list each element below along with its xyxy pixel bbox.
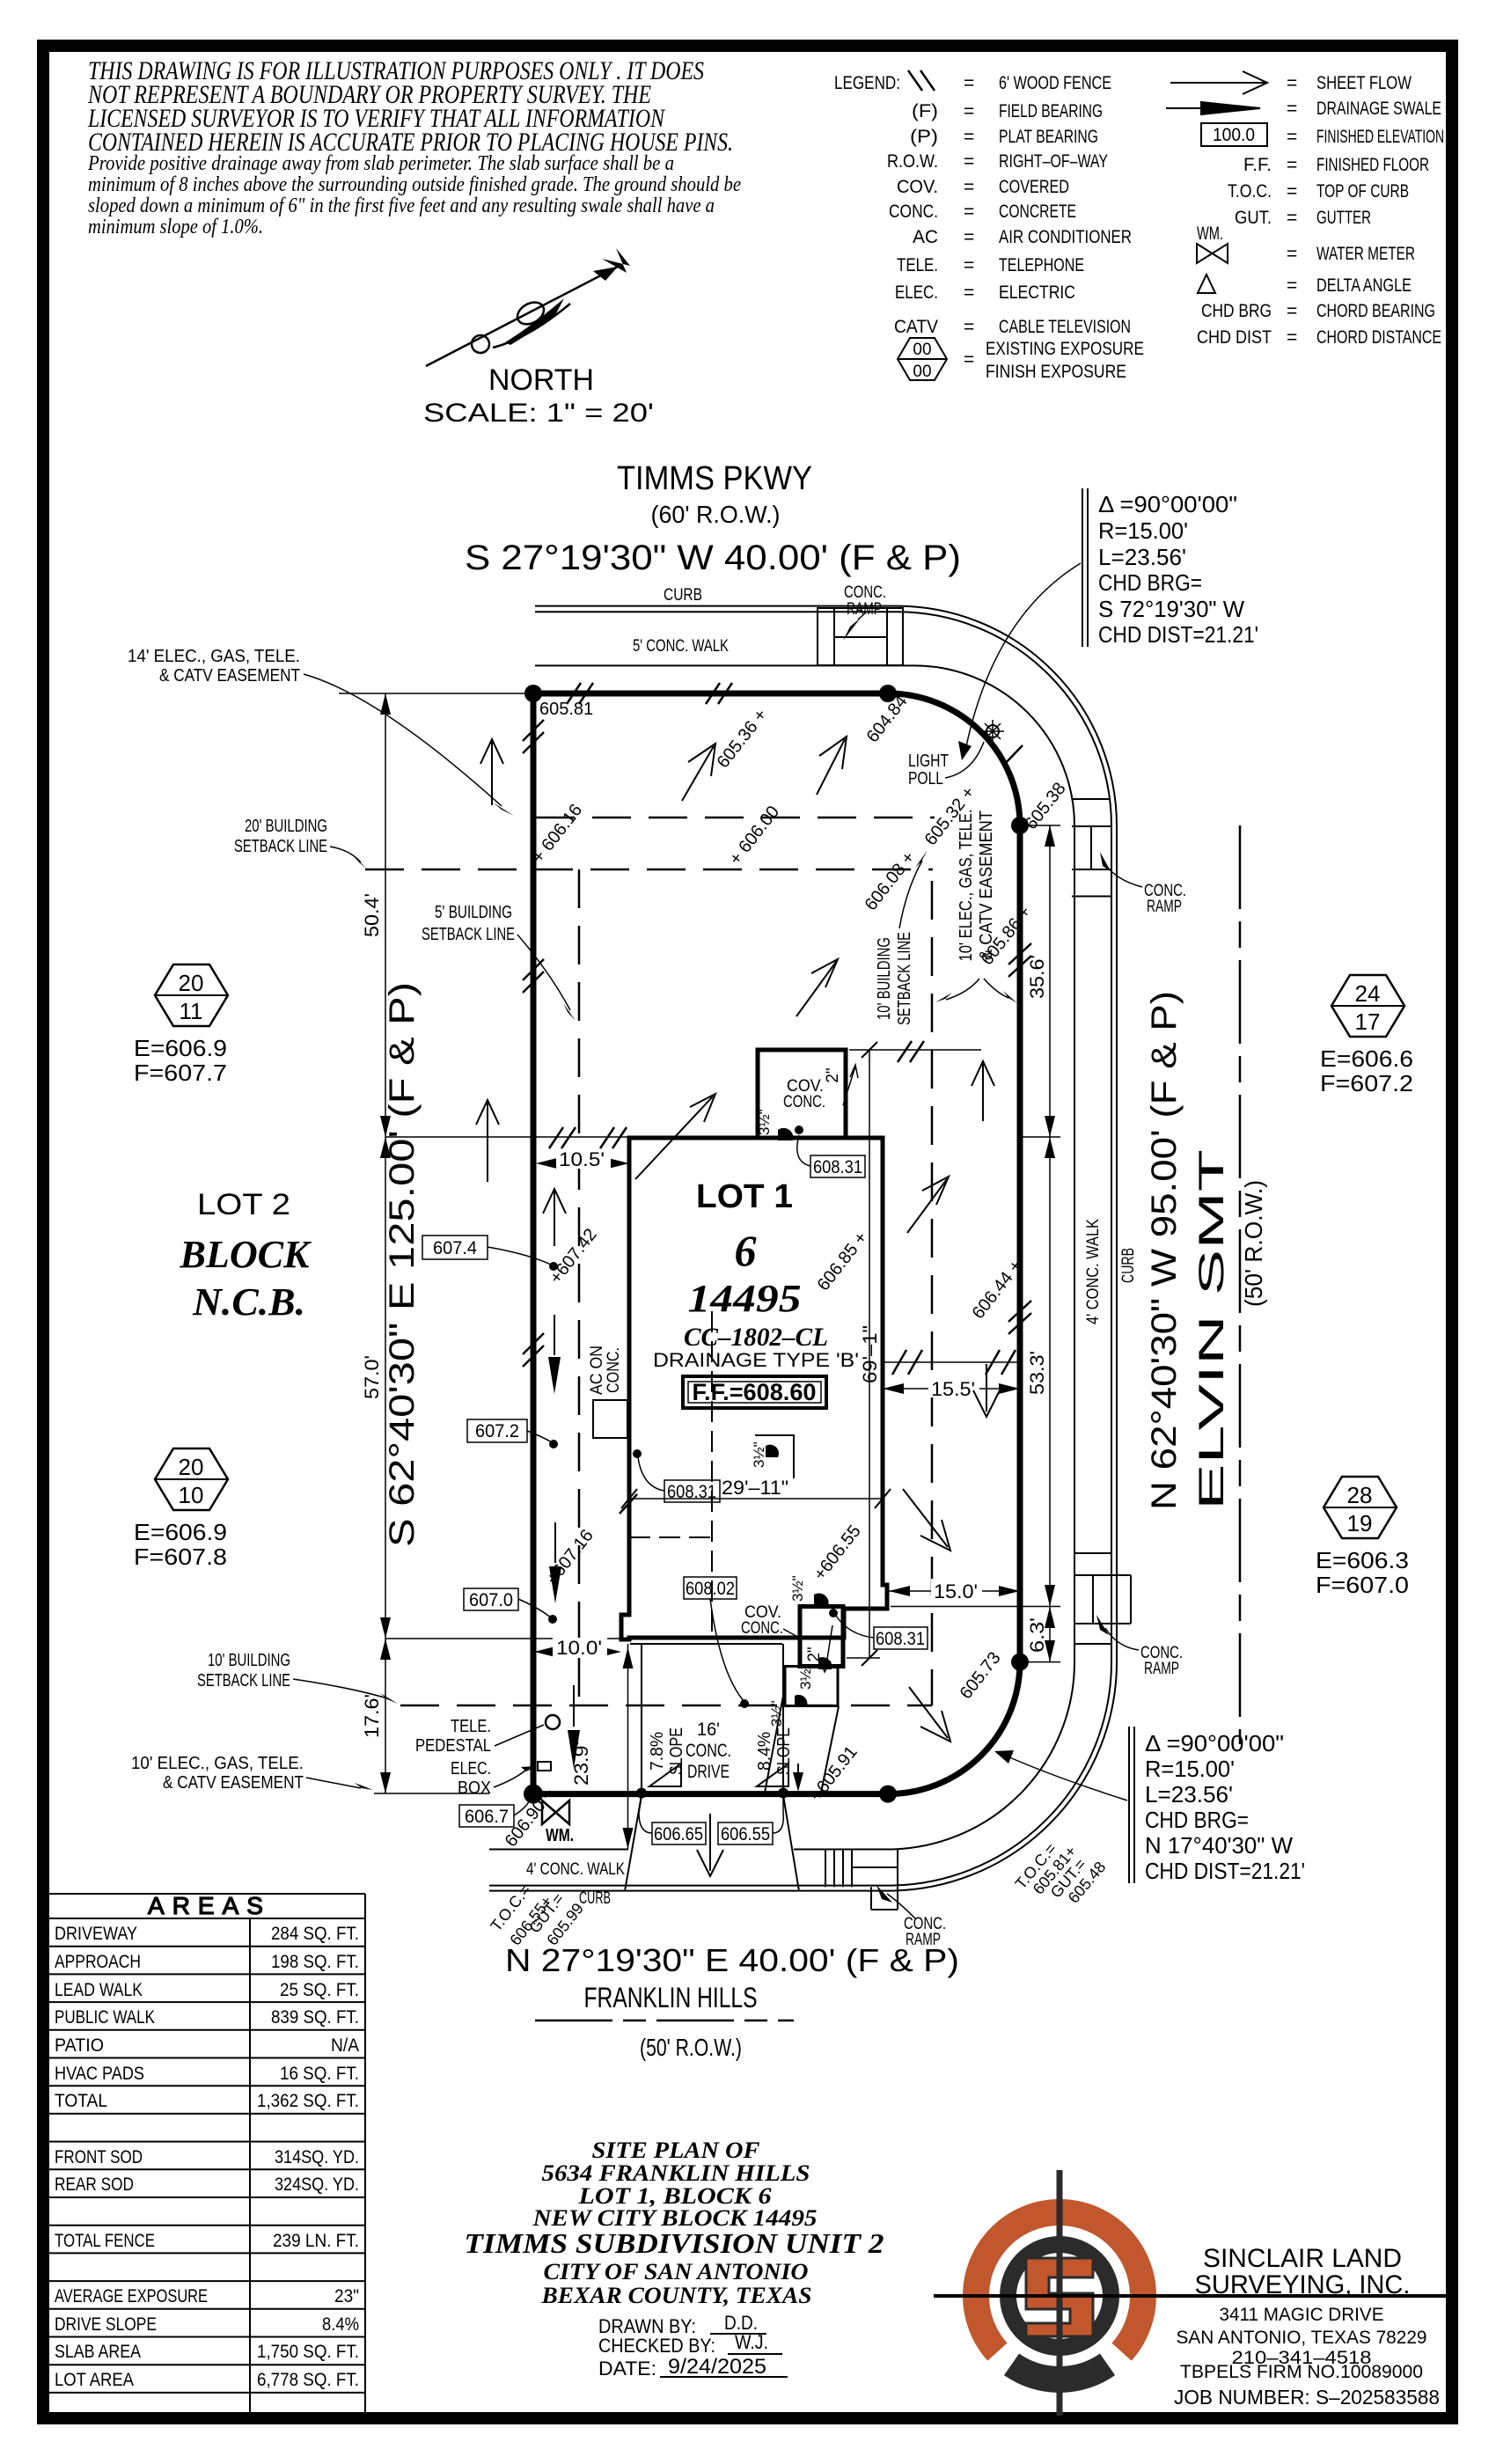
svg-text:E=606.3: E=606.3 (1316, 1547, 1409, 1573)
svg-text:CHECKED BY:: CHECKED BY: (598, 2335, 715, 2357)
svg-text:606.7: 606.7 (465, 1807, 509, 1827)
svg-text:N.C.B.: N.C.B. (192, 1280, 305, 1324)
svg-text:SLOPE: SLOPE (774, 1727, 794, 1775)
svg-text:239 LN. FT.: 239 LN. FT. (273, 2231, 359, 2251)
svg-text:=: = (964, 151, 974, 172)
svg-text:6.3': 6.3' (1026, 1617, 1048, 1653)
svg-text:9/24/2025: 9/24/2025 (668, 2355, 766, 2379)
svg-text:=: = (964, 317, 974, 337)
svg-text:TELEPHONE: TELEPHONE (999, 255, 1084, 275)
svg-text:CHD BRG: CHD BRG (1201, 301, 1272, 321)
svg-text:CHD DIST=21.21': CHD DIST=21.21' (1098, 621, 1258, 648)
svg-text:(50' R.O.W.): (50' R.O.W.) (640, 2034, 742, 2061)
svg-text:GUTTER: GUTTER (1316, 208, 1371, 228)
svg-text:TIMMS PKWY: TIMMS PKWY (617, 460, 812, 497)
svg-text:CURB: CURB (1119, 1248, 1138, 1283)
svg-text:RIGHT–OF–WAY: RIGHT–OF–WAY (999, 151, 1108, 172)
svg-text:S 62°40'30" E 125.00' (F & P): S 62°40'30" E 125.00' (F & P) (383, 982, 422, 1547)
svg-text:=: = (1287, 127, 1297, 147)
svg-text:AC: AC (913, 227, 938, 247)
svg-text:SETBACK LINE: SETBACK LINE (422, 925, 515, 944)
svg-text:HVAC PADS: HVAC PADS (55, 2064, 144, 2084)
svg-text:ELEC.: ELEC. (895, 282, 938, 303)
svg-text:(P): (P) (910, 127, 938, 147)
svg-text:FRONT SOD: FRONT SOD (55, 2147, 143, 2167)
svg-text:COV.: COV. (897, 177, 938, 197)
svg-text:=: = (1287, 208, 1297, 228)
svg-text:L=23.56': L=23.56' (1098, 544, 1186, 570)
svg-text:DATE:: DATE: (598, 2358, 656, 2380)
svg-text:SINCLAIR LAND: SINCLAIR LAND (1203, 2244, 1402, 2273)
svg-text:GUT.: GUT. (1235, 208, 1272, 228)
svg-text:CABLE TELEVISION: CABLE TELEVISION (999, 317, 1131, 337)
svg-text:=: = (1287, 181, 1297, 202)
svg-text:LOT 2: LOT 2 (197, 1188, 290, 1221)
svg-text:100.0: 100.0 (1213, 125, 1255, 145)
svg-text:14' ELEC., GAS, TELE.: 14' ELEC., GAS, TELE. (128, 647, 300, 666)
svg-text:608.31: 608.31 (813, 1157, 862, 1177)
svg-text:=: = (964, 73, 974, 93)
svg-text:PATIO: PATIO (55, 2035, 104, 2056)
svg-text:314SQ. YD.: 314SQ. YD. (275, 2147, 359, 2167)
svg-text:CITY OF SAN ANTONIO: CITY OF SAN ANTONIO (544, 2259, 809, 2284)
svg-text:FINISHED FLOOR: FINISHED FLOOR (1316, 155, 1429, 175)
svg-text:F=607.2: F=607.2 (1320, 1070, 1413, 1096)
svg-text:(60' R.O.W.): (60' R.O.W.) (651, 501, 781, 528)
svg-text:N 17°40'30" W: N 17°40'30" W (1145, 1832, 1293, 1859)
svg-text:JOB NUMBER: S–202583588: JOB NUMBER: S–202583588 (1174, 2386, 1440, 2409)
svg-text:TOP OF CURB: TOP OF CURB (1316, 181, 1409, 202)
svg-text:SETBACK LINE: SETBACK LINE (895, 932, 914, 1025)
svg-text:AREAS: AREAS (148, 1892, 271, 1919)
svg-text:=: = (1287, 301, 1297, 321)
svg-text:=: = (964, 202, 974, 222)
svg-text:606.55: 606.55 (721, 1824, 770, 1844)
svg-text:=: = (964, 255, 974, 275)
svg-text:T.O.C.: T.O.C. (1228, 181, 1272, 202)
svg-text:FINISH EXPOSURE: FINISH EXPOSURE (986, 362, 1126, 382)
svg-text:W.J.: W.J. (735, 2331, 768, 2353)
svg-text:PEDESTAL: PEDESTAL (415, 1736, 491, 1756)
svg-text:3½": 3½" (797, 1663, 814, 1690)
svg-text:N 27°19'30" E 40.00' (F & P): N 27°19'30" E 40.00' (F & P) (505, 1942, 959, 1978)
svg-text:F.F.=608.60: F.F.=608.60 (693, 1379, 817, 1405)
svg-text:10.0': 10.0' (556, 1637, 602, 1659)
svg-text:EXISTING EXPOSURE: EXISTING EXPOSURE (986, 339, 1144, 359)
svg-text:Provide positive drainage away: Provide positive drainage away from slab… (87, 152, 674, 175)
svg-text:N/A: N/A (331, 2035, 359, 2056)
svg-text:28: 28 (1347, 1482, 1373, 1508)
svg-text:198 SQ. FT.: 198 SQ. FT. (271, 1952, 359, 1972)
svg-text:CHD BRG=: CHD BRG= (1145, 1807, 1249, 1833)
svg-text:11: 11 (180, 998, 203, 1024)
svg-text:WM.: WM. (546, 1826, 574, 1845)
svg-text:LEGEND:: LEGEND: (834, 73, 900, 93)
svg-text:608.31: 608.31 (876, 1629, 925, 1649)
svg-text:10' ELEC., GAS, TELE.: 10' ELEC., GAS, TELE. (131, 1754, 304, 1773)
svg-text:=: = (964, 349, 974, 370)
svg-text:CHORD BEARING: CHORD BEARING (1316, 301, 1435, 321)
svg-text:CURB: CURB (579, 1889, 611, 1908)
svg-text:6' WOOD FENCE: 6' WOOD FENCE (999, 73, 1111, 93)
svg-text:14495: 14495 (688, 1277, 802, 1320)
svg-text:AC ON: AC ON (588, 1346, 606, 1395)
svg-text:10' ELEC., GAS, TELE.: 10' ELEC., GAS, TELE. (957, 810, 976, 962)
svg-text:10' BUILDING: 10' BUILDING (875, 937, 894, 1020)
svg-text:FRANKLIN HILLS: FRANKLIN HILLS (584, 1982, 758, 2013)
svg-text:BEXAR COUNTY, TEXAS: BEXAR COUNTY, TEXAS (540, 2283, 811, 2308)
svg-text:CONC.: CONC. (844, 583, 886, 602)
svg-text:DRAINAGE TYPE 'B': DRAINAGE TYPE 'B' (653, 1349, 859, 1371)
svg-text:S 27°19'30" W 40.00' (F & P): S 27°19'30" W 40.00' (F & P) (465, 539, 961, 577)
svg-text:839 SQ. FT.: 839 SQ. FT. (271, 2007, 359, 2028)
svg-text:AIR CONDITIONER: AIR CONDITIONER (999, 227, 1132, 247)
svg-text:CHD DIST: CHD DIST (1197, 327, 1272, 348)
svg-text:19: 19 (1347, 1510, 1373, 1536)
svg-text:LIGHT: LIGHT (908, 752, 949, 771)
svg-text:R.O.W.: R.O.W. (887, 151, 938, 172)
svg-text:DRIVE: DRIVE (687, 1762, 730, 1782)
svg-text:=: = (1287, 275, 1297, 296)
svg-text:3½": 3½" (756, 1109, 773, 1135)
svg-text:SHEET FLOW: SHEET FLOW (1316, 73, 1412, 93)
svg-text:15.0': 15.0' (934, 1580, 978, 1602)
svg-text:BOX: BOX (458, 1778, 491, 1798)
svg-text:CC–1802–CL: CC–1802–CL (684, 1323, 828, 1352)
svg-text:F=607.0: F=607.0 (1316, 1572, 1409, 1598)
svg-text:=: = (1287, 244, 1297, 264)
svg-text:DRAINAGE SWALE: DRAINAGE SWALE (1316, 99, 1441, 119)
svg-text:ELEC.: ELEC. (451, 1759, 491, 1778)
svg-text:minimum of 8 inches above the: minimum of 8 inches above the surroundin… (88, 173, 741, 196)
svg-text:608.02: 608.02 (686, 1579, 735, 1599)
svg-text:16': 16' (697, 1720, 720, 1740)
svg-text:CONC.: CONC. (889, 202, 938, 222)
svg-text:REAR SOD: REAR SOD (55, 2174, 134, 2195)
svg-text:F=607.8: F=607.8 (134, 1544, 227, 1570)
svg-text:WM.: WM. (1197, 224, 1223, 244)
svg-text:E=606.9: E=606.9 (134, 1519, 227, 1545)
svg-text:CONC.: CONC. (783, 1093, 825, 1111)
svg-text:3½": 3½" (751, 1441, 767, 1468)
svg-text:RAMP: RAMP (1147, 898, 1182, 916)
svg-text:F=607.7: F=607.7 (134, 1060, 227, 1086)
svg-text:607.2: 607.2 (475, 1421, 519, 1441)
svg-text:(F): (F) (912, 101, 938, 121)
svg-text:COVERED: COVERED (999, 177, 1069, 197)
svg-text:3½": 3½" (789, 1575, 806, 1602)
svg-text:=: = (964, 101, 974, 121)
svg-text:CURB: CURB (664, 586, 702, 605)
svg-text:RAMP: RAMP (847, 600, 882, 619)
svg-text:35.6': 35.6' (1026, 955, 1048, 999)
svg-text:L=23.56': L=23.56' (1145, 1781, 1233, 1808)
svg-text:TELE.: TELE. (897, 255, 938, 275)
svg-text:SETBACK LINE: SETBACK LINE (197, 1671, 290, 1690)
svg-text:SETBACK LINE: SETBACK LINE (234, 837, 327, 856)
svg-text:10.5': 10.5' (559, 1148, 605, 1170)
svg-text:5' BUILDING: 5' BUILDING (435, 903, 512, 922)
svg-text:=: = (1287, 155, 1297, 175)
svg-text:SURVEYING, INC.: SURVEYING, INC. (1195, 2270, 1411, 2299)
svg-text:ELVIN SMT: ELVIN SMT (1192, 1149, 1231, 1510)
svg-text:N 62°40'30" W 95.00' (F & P): N 62°40'30" W 95.00' (F & P) (1145, 991, 1184, 1510)
svg-text:CONCRETE: CONCRETE (999, 202, 1076, 222)
svg-text:POLL: POLL (908, 769, 943, 788)
svg-text:69'–1": 69'–1" (859, 1325, 881, 1383)
svg-text:50.4': 50.4' (361, 893, 383, 937)
svg-text:AVERAGE EXPOSURE: AVERAGE EXPOSURE (55, 2286, 208, 2306)
svg-text:RAMP: RAMP (1144, 1660, 1179, 1678)
svg-text:WATER METER: WATER METER (1316, 244, 1415, 264)
svg-text:24: 24 (1355, 980, 1381, 1007)
svg-text:606.65: 606.65 (654, 1824, 703, 1844)
svg-text:DRIVE SLOPE: DRIVE SLOPE (55, 2314, 157, 2335)
svg-text:DELTA ANGLE: DELTA ANGLE (1316, 275, 1412, 296)
svg-text:E=606.9: E=606.9 (134, 1035, 227, 1061)
svg-text:10' BUILDING: 10' BUILDING (208, 1651, 290, 1670)
svg-text:10: 10 (179, 1482, 204, 1508)
svg-text:607.0: 607.0 (469, 1590, 513, 1610)
svg-text:=: = (964, 282, 974, 303)
svg-text:FIELD BEARING: FIELD BEARING (999, 101, 1103, 121)
svg-text:20: 20 (179, 1454, 204, 1480)
svg-text:TOTAL: TOTAL (55, 2091, 107, 2111)
svg-text:CHD DIST=21.21': CHD DIST=21.21' (1145, 1858, 1305, 1884)
svg-text:R=15.00': R=15.00' (1145, 1756, 1235, 1782)
svg-text:607.4: 607.4 (433, 1238, 477, 1258)
svg-text:16 SQ. FT.: 16 SQ. FT. (280, 2064, 359, 2084)
svg-text:& CATV EASEMENT: & CATV EASEMENT (163, 1773, 304, 1793)
svg-text:4' CONC. WALK: 4' CONC. WALK (1084, 1219, 1103, 1324)
svg-text:minimum slope of 1.0%.: minimum slope of 1.0%. (88, 216, 263, 238)
svg-text:7.8%: 7.8% (648, 1732, 667, 1771)
svg-text:25 SQ. FT.: 25 SQ. FT. (280, 1980, 359, 2000)
svg-text:APPROACH: APPROACH (55, 1952, 141, 1972)
svg-text:5' CONC. WALK: 5' CONC. WALK (633, 637, 729, 656)
svg-text:LOT AREA: LOT AREA (55, 2370, 134, 2390)
svg-text:TELE.: TELE. (451, 1717, 491, 1736)
svg-text:284 SQ. FT.: 284 SQ. FT. (271, 1924, 359, 1944)
svg-text:608.31: 608.31 (667, 1482, 716, 1502)
svg-text:20: 20 (179, 970, 204, 996)
svg-text:15.5': 15.5' (931, 1378, 975, 1400)
svg-text:(50' R.O.W.): (50' R.O.W.) (1240, 1180, 1267, 1307)
svg-text:LOT 1: LOT 1 (696, 1178, 793, 1215)
svg-text:TOTAL FENCE: TOTAL FENCE (55, 2231, 155, 2251)
svg-text:57.0': 57.0' (361, 1355, 383, 1399)
svg-text:00: 00 (913, 341, 931, 359)
svg-text:DRIVEWAY: DRIVEWAY (55, 1924, 137, 1944)
svg-text:=: = (1287, 73, 1297, 93)
svg-text:2": 2" (824, 1067, 842, 1082)
svg-text:TBPELS FIRM NO.10089000: TBPELS FIRM NO.10089000 (1180, 2362, 1423, 2382)
svg-text:17: 17 (1355, 1008, 1381, 1035)
svg-text:CHD BRG=: CHD BRG= (1098, 569, 1202, 596)
svg-text:8.4%: 8.4% (755, 1732, 774, 1771)
svg-text:sloped down a minimum of 6" in: sloped down a minimum of 6" in the first… (88, 194, 715, 217)
svg-text:SLOPE: SLOPE (667, 1727, 686, 1775)
svg-text:29'–11": 29'–11" (722, 1477, 788, 1499)
svg-text:TIMMS SUBDIVISION UNIT 2: TIMMS SUBDIVISION UNIT 2 (465, 2227, 884, 2259)
svg-text:CONC.: CONC. (605, 1347, 623, 1393)
svg-text:23": 23" (334, 2286, 359, 2306)
svg-text:E=606.6: E=606.6 (1320, 1045, 1413, 1072)
svg-text:6: 6 (735, 1226, 757, 1275)
svg-text:8.4%: 8.4% (322, 2314, 359, 2335)
svg-text:=: = (964, 177, 974, 197)
svg-text:=: = (964, 227, 974, 247)
svg-text:R=15.00': R=15.00' (1098, 517, 1188, 544)
svg-text:CONC.: CONC. (686, 1741, 731, 1761)
svg-text:5634 FRANKLIN HILLS: 5634 FRANKLIN HILLS (542, 2160, 810, 2186)
svg-text:CONC.: CONC. (741, 1619, 783, 1638)
svg-text:SLAB AREA: SLAB AREA (55, 2342, 141, 2362)
svg-text:LEAD WALK: LEAD WALK (55, 1980, 143, 2000)
svg-text:4' CONC. WALK: 4' CONC. WALK (526, 1860, 625, 1879)
svg-text:Δ =90°00'00": Δ =90°00'00" (1098, 491, 1237, 517)
svg-text:=: = (964, 127, 974, 147)
svg-text:PUBLIC WALK: PUBLIC WALK (55, 2007, 155, 2028)
svg-text:CATV: CATV (894, 317, 938, 337)
svg-text:F.F.: F.F. (1243, 155, 1272, 175)
svg-text:3411 MAGIC DRIVE: 3411 MAGIC DRIVE (1220, 2305, 1384, 2325)
svg-text:SAN ANTONIO, TEXAS 78229: SAN ANTONIO, TEXAS 78229 (1177, 2328, 1427, 2348)
svg-text:00: 00 (913, 363, 931, 381)
svg-text:& CATV EASEMENT: & CATV EASEMENT (159, 666, 300, 686)
svg-text:Δ =90°00'00": Δ =90°00'00" (1145, 1730, 1284, 1756)
svg-text:1,362 SQ. FT.: 1,362 SQ. FT. (257, 2091, 359, 2111)
svg-text:PLAT BEARING: PLAT BEARING (999, 127, 1098, 147)
svg-text:ELECTRIC: ELECTRIC (999, 282, 1075, 303)
svg-text:=: = (1287, 99, 1297, 119)
svg-text:=: = (1287, 327, 1297, 348)
svg-text:FINISHED ELEVATION: FINISHED ELEVATION (1316, 127, 1444, 147)
svg-text:SCALE: 1" = 20': SCALE: 1" = 20' (423, 399, 654, 428)
svg-text:S 72°19'30" W: S 72°19'30" W (1098, 596, 1244, 622)
svg-text:NORTH: NORTH (488, 363, 594, 397)
svg-text:20' BUILDING: 20' BUILDING (245, 817, 327, 836)
svg-text:17.6': 17.6' (361, 1694, 383, 1738)
svg-text:6,778 SQ. FT.: 6,778 SQ. FT. (257, 2370, 359, 2390)
svg-text:605.81: 605.81 (539, 700, 593, 719)
svg-text:324SQ. YD.: 324SQ. YD. (275, 2174, 359, 2195)
svg-text:53.3': 53.3' (1026, 1351, 1048, 1395)
svg-text:CHORD DISTANCE: CHORD DISTANCE (1316, 327, 1441, 348)
svg-text:SITE PLAN OF: SITE PLAN OF (592, 2138, 760, 2163)
svg-text:BLOCK: BLOCK (179, 1233, 312, 1276)
svg-text:1,750 SQ. FT.: 1,750 SQ. FT. (257, 2342, 359, 2362)
